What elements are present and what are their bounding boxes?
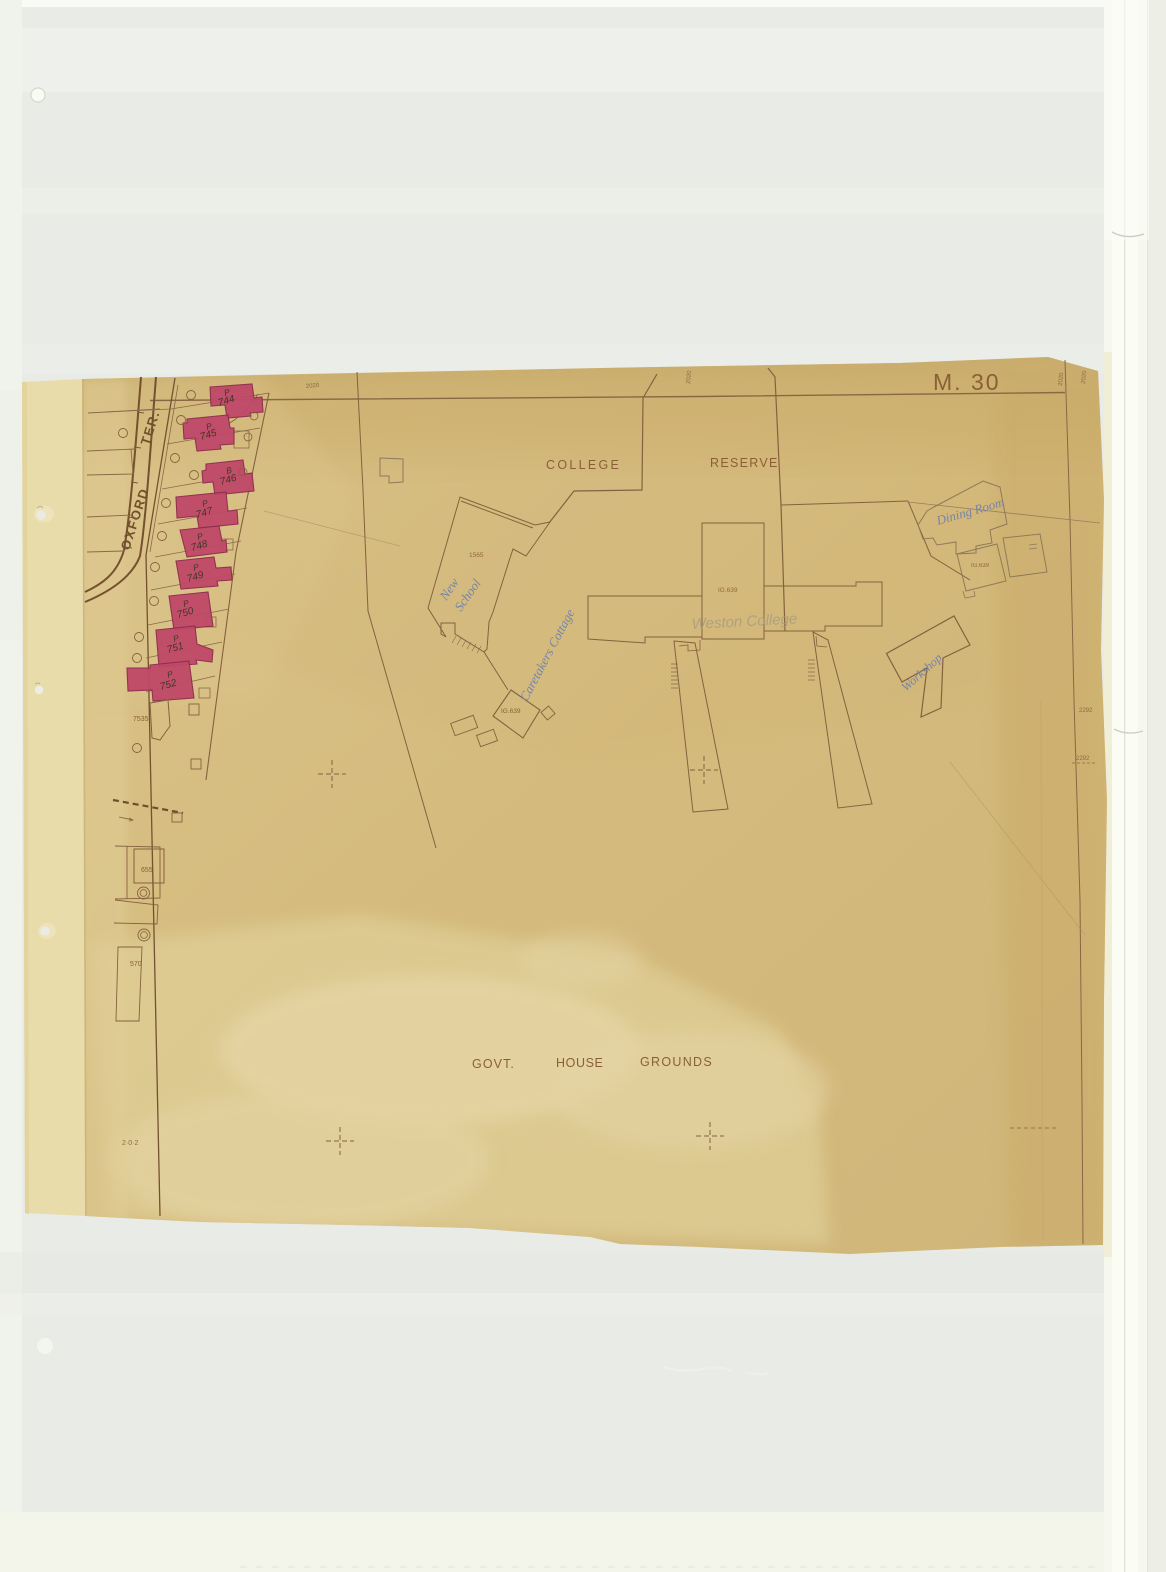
svg-text:570: 570 (130, 961, 142, 968)
svg-text:2020: 2020 (1058, 372, 1065, 386)
svg-text:2020: 2020 (1081, 370, 1088, 384)
svg-text:IG.639: IG.639 (501, 708, 521, 715)
svg-text:M. 30: M. 30 (933, 369, 1001, 395)
svg-text:HOUSE: HOUSE (556, 1056, 603, 1070)
svg-text:2292: 2292 (1079, 708, 1093, 714)
svg-text:2020: 2020 (306, 383, 320, 390)
svg-text:655: 655 (141, 867, 153, 874)
svg-text:7535: 7535 (133, 716, 149, 723)
svg-text:IG.639: IG.639 (971, 563, 990, 569)
svg-text:2292: 2292 (1076, 756, 1090, 762)
svg-text:IG.639: IG.639 (718, 587, 738, 594)
svg-text:COLLEGE: COLLEGE (546, 458, 621, 472)
svg-text:GOVT.: GOVT. (472, 1057, 515, 1071)
svg-text:GROUNDS: GROUNDS (640, 1055, 713, 1069)
svg-text:2020: 2020 (686, 370, 693, 384)
svg-text:2·0·2: 2·0·2 (122, 1140, 138, 1147)
svg-text:1565: 1565 (469, 552, 484, 559)
svg-text:RESERVE: RESERVE (710, 456, 779, 470)
